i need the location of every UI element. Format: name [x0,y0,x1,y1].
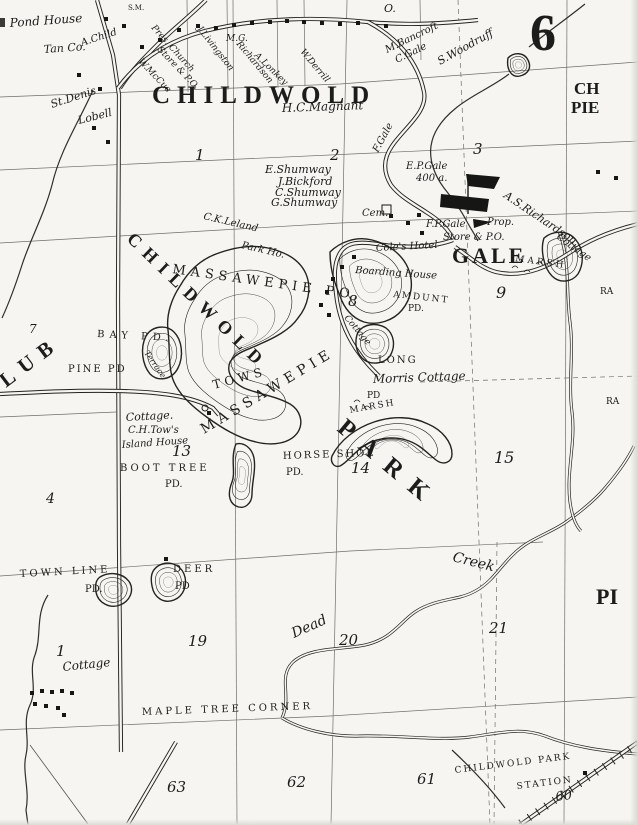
label-6: 6 [530,5,556,62]
road-core [282,446,634,718]
building-symbol [302,20,306,24]
building-symbol [30,691,34,695]
pond-boot-tree [229,444,254,508]
hotel-block-symbol [440,194,489,212]
label-pd: PD. [165,479,183,490]
building-symbol [122,24,126,28]
pond-top-right [508,54,530,77]
building-symbol [104,17,108,21]
lake-shore [508,54,530,77]
stream-station [452,750,505,808]
label-lobell: Lobell [76,106,114,127]
label-pi: PI [596,584,618,609]
building-symbol [62,713,66,717]
building-symbol [177,28,181,32]
label-400-a: 400 a. [415,173,447,184]
dead-creek-upper [282,446,634,718]
east-stream [560,234,581,531]
grid-line [0,697,638,730]
label-63: 63 [167,778,186,796]
label-pd: PD. [408,304,424,314]
label-cem: Cem. [362,208,388,219]
grid-line [458,0,490,825]
building-symbol [92,126,96,130]
label-c-h-tow-s: C.H.Tow's [128,425,179,436]
lake-contour [164,577,174,588]
label-park: PARK [332,414,445,515]
building-symbol [356,21,360,25]
label-1: 1 [195,146,205,164]
label-pd: PD [367,391,380,401]
building-symbol [268,20,272,24]
lake-contour [516,62,522,68]
grid-lines [0,0,638,825]
label-13: 13 [172,442,191,460]
building-symbol [583,771,587,775]
label-park-ho: Park Ho. [239,240,285,261]
label-2: 2 [329,146,340,164]
label-9: 9 [496,283,506,302]
label-prop: Prop. [486,217,514,228]
label-town-line: TOWN LINE [20,564,111,580]
label-8: 8 [348,292,358,310]
building-symbol [214,26,218,30]
label-ch: CH [574,79,600,98]
building-symbol [389,214,393,218]
building-symbol [232,23,236,27]
label-boarding-house: Boarding House [354,265,438,282]
building-symbol [352,255,356,259]
dead-creek-lower-path [282,718,638,754]
label-cottage: Cottage. [125,409,173,424]
building-symbol [207,411,211,415]
map-canvas: Pond HouseTan Co.A.ChildS.M.O.St.DenisLo… [0,0,638,825]
label-pd: PD. [85,584,103,595]
label-tan-co: Tan Co. [43,40,86,56]
label-o: O. [384,2,396,15]
dead-creek [282,446,634,718]
label-dead: Dead [288,612,329,642]
building-symbol [320,21,324,25]
label-ra: RA [600,287,614,297]
label-20: 20 [338,631,359,649]
grid-line [304,0,305,86]
label-s-woodruff: S.Woodruff [435,25,497,67]
building-symbol [319,303,323,307]
building-symbol [614,176,618,180]
building-symbol [384,24,388,28]
building-symbol [56,706,60,710]
lake-contour [109,585,119,594]
lake-contour [157,346,168,360]
label-cottage: Cottage [62,655,111,674]
lake-contour [238,467,245,485]
label-boot-tree: BOOT TREE [120,463,210,474]
label-pond-house: Pond House [8,11,83,30]
stream-woodruff [431,74,509,241]
label-store-p-o: Store & P.O. [443,232,505,243]
label-g-shumway: G.Shumway [271,196,338,209]
label-f-p-gale: F.P.Gale [425,219,466,230]
stream-southwest [25,595,48,825]
label-morris-cottage: Morris Cottage [372,369,466,386]
label-cole-s-hotel: Cole's Hotel [376,240,438,254]
label-maple-tree-corner: MAPLE TREE CORNER [142,701,314,718]
building-symbol [33,702,37,706]
grid-line [0,412,116,417]
building-symbol [340,265,344,269]
label-e-p-gale: E.P.Gale [405,161,448,172]
building-symbol [44,704,48,708]
label-pine-pd: PINE PD [68,364,127,375]
label-61: 61 [417,770,436,788]
road-club-west [0,391,219,415]
label-childwold-park: CHILDWOLD PARK [454,752,572,776]
label-terrace: Terrace [142,349,167,380]
label-62: 62 [287,773,306,791]
building-symbol [60,689,64,693]
scan-edge-right [630,0,638,825]
grid-line [331,0,347,825]
building-symbol [331,277,335,281]
labels-layer: Pond HouseTan Co.A.ChildS.M.O.St.DenisLo… [0,2,620,805]
label-w-derrill: W.Derrill [298,48,332,85]
scan-artifact [0,18,5,27]
grid-line [227,0,228,90]
building-symbol [417,213,421,217]
building-symbol [77,73,81,77]
scan-edge-bottom [0,819,638,825]
label-creek: Creek [451,549,496,575]
hotel-flag-symbol [466,174,500,189]
label-3: 3 [473,140,483,158]
label-h-c-magnant: H.C.Magnant [281,98,364,115]
label-s-m: S.M. [128,4,144,12]
building-symbol [250,21,254,25]
building-symbol [50,690,54,694]
label-deer: DEER [173,564,215,575]
label-1: 1 [56,642,66,660]
building-symbol [70,691,74,695]
building-symbol [327,313,331,317]
building-symbol [420,231,424,235]
building-symbol [338,22,342,26]
building-symbol [285,19,289,23]
lake-contour [235,459,248,492]
road-path [0,391,219,415]
label-long: LONG [378,355,418,366]
building-symbol [406,221,410,225]
label-ra: RA [606,397,620,407]
lake-contour [513,59,524,71]
dead-creek-lower [282,718,638,754]
building-symbol [596,170,600,174]
label-pd: PD. [286,467,304,478]
label-7: 7 [29,322,37,336]
label-bay-pd: BAY PD. [97,329,174,344]
marsh-tufts [354,262,542,408]
building-symbol [140,45,144,49]
label-pd: PD [175,581,190,592]
building-symbol [98,87,102,91]
label-15: 15 [494,448,514,467]
scanned-map-page: Pond HouseTan Co.A.ChildS.M.O.St.DenisLo… [0,0,638,825]
label-lub: LUB [0,331,65,392]
label-19: 19 [188,632,208,650]
grid-line [30,745,88,824]
label-c-k-leland: C.K.Leland [202,211,259,234]
label-4: 4 [45,491,55,507]
label-21: 21 [488,619,508,637]
label-pie: PIE [571,98,599,117]
building-symbol [40,689,44,693]
grid-line [494,542,497,825]
label-st-denis: St.Denis [49,84,98,111]
building-symbol [164,557,168,561]
building-symbol [106,140,110,144]
label-60: 60 [555,788,573,805]
